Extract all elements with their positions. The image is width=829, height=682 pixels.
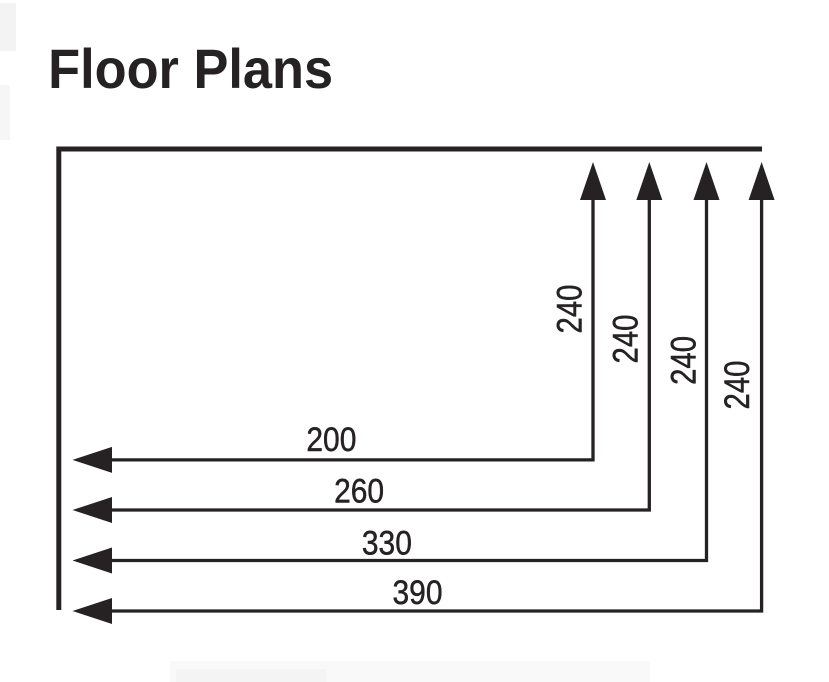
svg-text:240: 240	[665, 336, 704, 385]
svg-text:200: 200	[306, 421, 356, 459]
svg-text:240: 240	[551, 285, 590, 334]
svg-text:240: 240	[607, 315, 646, 364]
svg-text:240: 240	[718, 361, 757, 410]
svg-text:330: 330	[362, 524, 412, 562]
svg-text:260: 260	[334, 473, 384, 511]
svg-text:390: 390	[393, 574, 443, 612]
svg-text:Floor Plans: Floor Plans	[48, 37, 333, 100]
